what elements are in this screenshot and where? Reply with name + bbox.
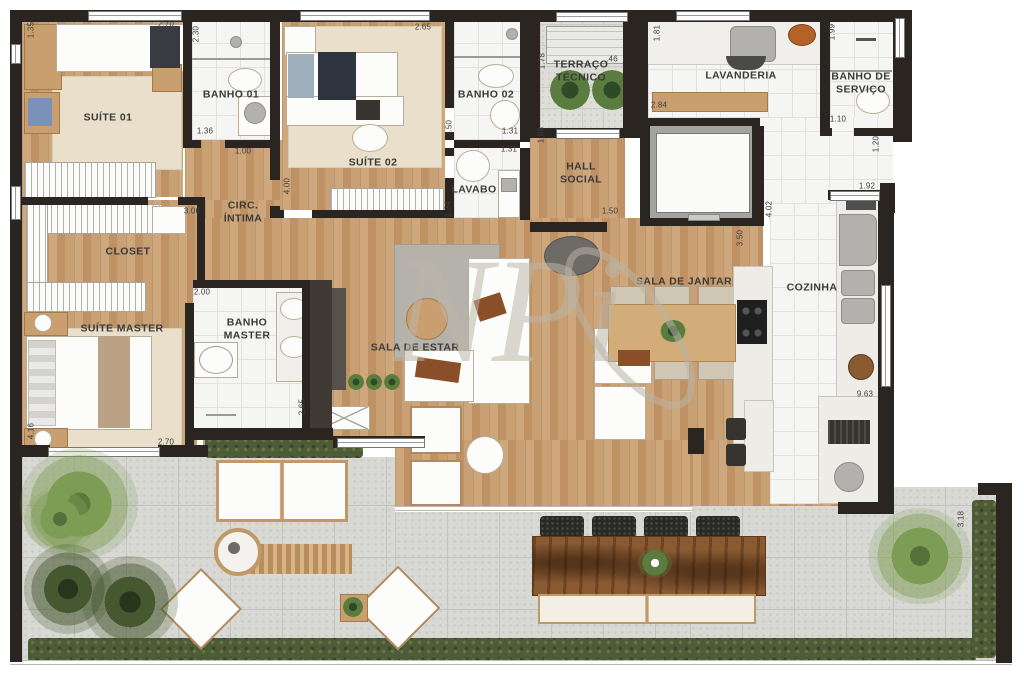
room-label-banho-01: BANHO 01 <box>203 89 259 102</box>
dimension-label: 2.00 <box>194 288 210 297</box>
dimension-label: 2.50 <box>445 120 454 136</box>
room-label-suite-02: SUÍTE 02 <box>349 157 398 170</box>
dimension-label: 2.65 <box>415 23 431 32</box>
room-label-sala-de-jantar: SALA DE JANTAR <box>636 276 732 289</box>
dimension-label: 3.06 <box>184 207 200 216</box>
dimension-label: 1.50 <box>602 207 618 216</box>
dimension-label: 3.50 <box>736 230 745 246</box>
dimension-label: 1.35 <box>27 22 36 38</box>
dimension-label: 2.30 <box>192 26 201 42</box>
room-label-banho-master: BANHO MASTER <box>224 316 271 341</box>
dimension-label: 1.88 <box>537 127 546 143</box>
floor-plan: SUÍTE 01BANHO 01SUÍTE 02BANHO 02LAVABOTE… <box>0 0 1024 682</box>
dimension-label: 4.00 <box>283 178 292 194</box>
dimension-label: 9.63 <box>857 390 873 399</box>
room-label-suite-01: SUÍTE 01 <box>84 112 133 125</box>
dimension-label: 1.36 <box>197 127 213 136</box>
dimension-label: .46 <box>606 55 618 64</box>
room-label-lavanderia: LAVANDERIA <box>705 70 776 83</box>
room-label-cozinha: COZINHA <box>787 282 838 295</box>
dimension-label: 1.92 <box>859 182 875 191</box>
dimension-label: 1.31 <box>502 127 518 136</box>
labels-layer: SUÍTE 01BANHO 01SUÍTE 02BANHO 02LAVABOTE… <box>0 0 1024 682</box>
dimension-label: 3.18 <box>957 511 966 527</box>
dimension-label: 2.70 <box>158 20 174 29</box>
dimension-label: 2.70 <box>158 438 174 447</box>
room-label-banho-02: BANHO 02 <box>458 89 514 102</box>
dimension-label: 1.99 <box>828 24 837 40</box>
room-label-closet: CLOSET <box>106 246 151 259</box>
dimension-label: 2.65 <box>298 399 307 415</box>
room-label-hall-social: HALL SOCIAL <box>560 160 602 185</box>
dimension-label: 1.31 <box>501 145 517 154</box>
room-label-terraco-tecnico: TERRAÇO TÉCNICO <box>554 58 609 83</box>
dimension-label: 1.10 <box>830 115 846 124</box>
dimension-label: 1.78 <box>538 53 547 69</box>
room-label-banho-de-servico: BANHO DE SERVIÇO <box>831 70 890 95</box>
dimension-label: 2.84 <box>651 101 667 110</box>
room-label-sala-de-estar: SALA DE ESTAR <box>371 342 460 355</box>
dimension-label: 1.81 <box>653 25 662 41</box>
dimension-label: 4.02 <box>765 201 774 217</box>
dimension-label: 1.00 <box>235 147 251 156</box>
room-label-lavabo: LAVABO <box>451 184 496 197</box>
dimension-label: 1.34 <box>444 201 453 217</box>
dimension-label: 4.16 <box>27 423 36 439</box>
room-label-circ-intima: CIRC. ÍNTIMA <box>224 199 263 224</box>
room-label-suite-master: SUÍTE MASTER <box>81 323 164 336</box>
dimension-label: 1.20 <box>872 136 881 152</box>
